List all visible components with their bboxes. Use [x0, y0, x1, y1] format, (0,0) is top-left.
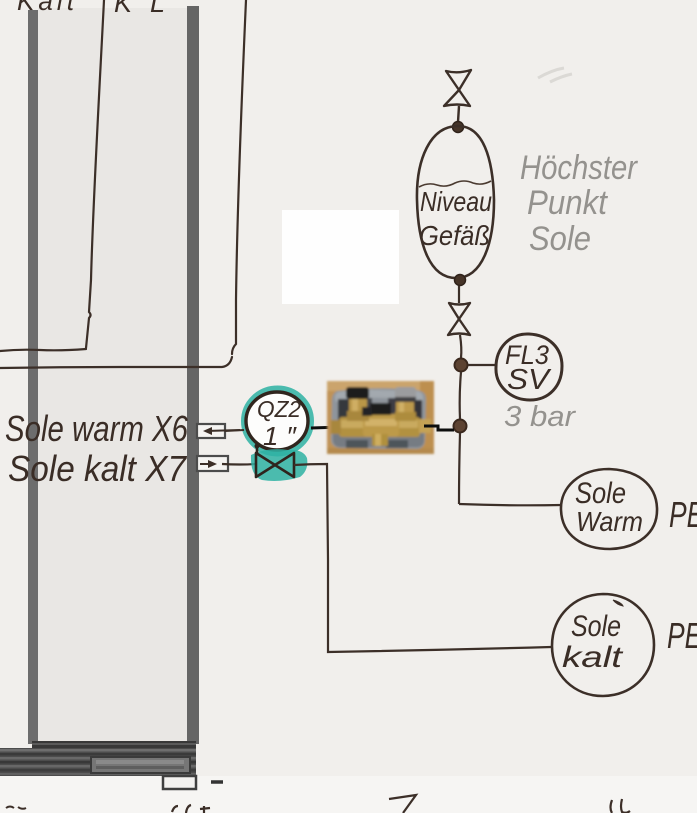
- svg-text:3 bar: 3 bar: [504, 401, 576, 433]
- svg-text:Punkt: Punkt: [527, 184, 608, 222]
- svg-text:kalt: kalt: [562, 641, 624, 674]
- svg-text:Kalt: Kalt: [17, 0, 76, 16]
- svg-text:Sole: Sole: [571, 610, 621, 643]
- svg-text:Niveau: Niveau: [420, 186, 492, 217]
- svg-text:Gefäß: Gefäß: [419, 220, 490, 251]
- svg-text:Sole kalt X7: Sole kalt X7: [8, 448, 188, 489]
- svg-text:Sole: Sole: [529, 220, 591, 258]
- svg-text:Höchster: Höchster: [520, 149, 638, 187]
- svg-text:Warm: Warm: [576, 506, 643, 537]
- svg-text:Sole warm X6: Sole warm X6: [5, 408, 189, 449]
- svg-text:SV: SV: [507, 364, 552, 396]
- svg-text:PE(: PE(: [669, 494, 697, 535]
- svg-text:QZ2: QZ2: [257, 396, 301, 422]
- svg-text:1 ″: 1 ″: [263, 421, 297, 451]
- svg-text:PE(: PE(: [667, 615, 697, 656]
